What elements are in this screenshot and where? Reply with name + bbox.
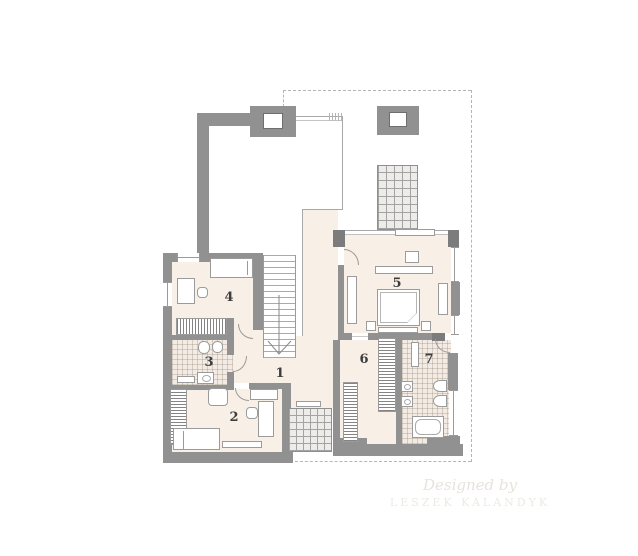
railing-hatch	[329, 113, 343, 121]
chair-icon	[197, 287, 208, 298]
room-4-label: 4	[221, 290, 237, 305]
watermark-line1: Designed by	[378, 475, 562, 495]
desk-icon	[258, 401, 274, 437]
tv-icon	[405, 251, 419, 263]
cabinet-icon	[411, 342, 419, 367]
wall-corner	[333, 230, 345, 247]
bidet-icon	[212, 341, 223, 353]
bed-icon	[173, 428, 220, 450]
room-5-label: 5	[389, 276, 405, 291]
room-3-label: 3	[201, 355, 217, 370]
window	[451, 247, 459, 282]
cabinet-icon	[438, 283, 448, 315]
window	[451, 315, 459, 335]
desk-icon	[177, 278, 195, 304]
wall	[448, 353, 458, 390]
bed-icon	[210, 258, 253, 278]
room-6-label: 6	[356, 352, 372, 367]
wall	[333, 340, 340, 444]
chimney-right-flue	[389, 112, 407, 127]
wall	[333, 444, 463, 456]
watermark-line2: LESZEK KALANDYK	[378, 495, 562, 510]
wardrobe-icon	[343, 382, 358, 442]
roof-skylight-grid	[377, 165, 418, 230]
wall	[253, 253, 263, 330]
nightstand-icon	[421, 321, 431, 331]
shelf-icon	[222, 441, 262, 448]
window	[449, 390, 458, 436]
dresser-icon	[375, 266, 433, 274]
cabinet-icon	[347, 276, 357, 324]
void-edge-line	[342, 116, 343, 209]
floor-plan-canvas: 1 2 3 4 5 6 7 Designed by LESZEK KALANDY…	[0, 0, 638, 556]
sink-icon	[401, 396, 413, 407]
toilet-icon	[433, 380, 447, 392]
roof-window-sill	[395, 229, 435, 236]
counter-icon	[177, 376, 195, 383]
bed-icon	[377, 289, 420, 326]
wall	[451, 282, 460, 315]
terrace-skylight-grid	[288, 408, 332, 452]
wall	[165, 452, 293, 463]
terrace-sill	[296, 401, 321, 407]
room-7-label: 7	[421, 352, 437, 367]
chair-icon	[246, 407, 258, 419]
room-2-label: 2	[226, 410, 242, 425]
bench-icon	[378, 327, 418, 333]
room-1-label: 1	[272, 366, 288, 381]
wall	[338, 333, 352, 340]
window	[163, 282, 172, 307]
wall	[338, 265, 344, 340]
wardrobe-icon	[176, 318, 227, 335]
wall	[172, 335, 234, 340]
nightstand-icon	[366, 321, 376, 331]
wall	[396, 340, 402, 444]
wall	[197, 113, 209, 262]
stairs-direction-arrow	[263, 255, 296, 358]
sink-icon	[197, 372, 214, 384]
wall	[227, 318, 234, 355]
door-opening-room6	[352, 336, 368, 337]
wardrobe-icon	[378, 338, 396, 412]
window	[177, 253, 200, 262]
armchair-icon	[208, 388, 228, 406]
roof-outline-right	[471, 90, 472, 462]
roof-outline-bottom	[295, 461, 471, 462]
roof-outline-top	[283, 90, 471, 91]
bathtub-icon	[412, 416, 444, 438]
watermark: Designed by LESZEK KALANDYK	[378, 475, 562, 510]
toilet-icon	[198, 341, 210, 354]
bidet-icon	[433, 395, 447, 407]
roof-outline-left-stub	[283, 90, 284, 107]
chimney-left-flue	[263, 113, 283, 129]
wall-corner	[448, 230, 459, 247]
sideboard-icon	[250, 389, 278, 400]
sink-icon	[401, 381, 413, 392]
